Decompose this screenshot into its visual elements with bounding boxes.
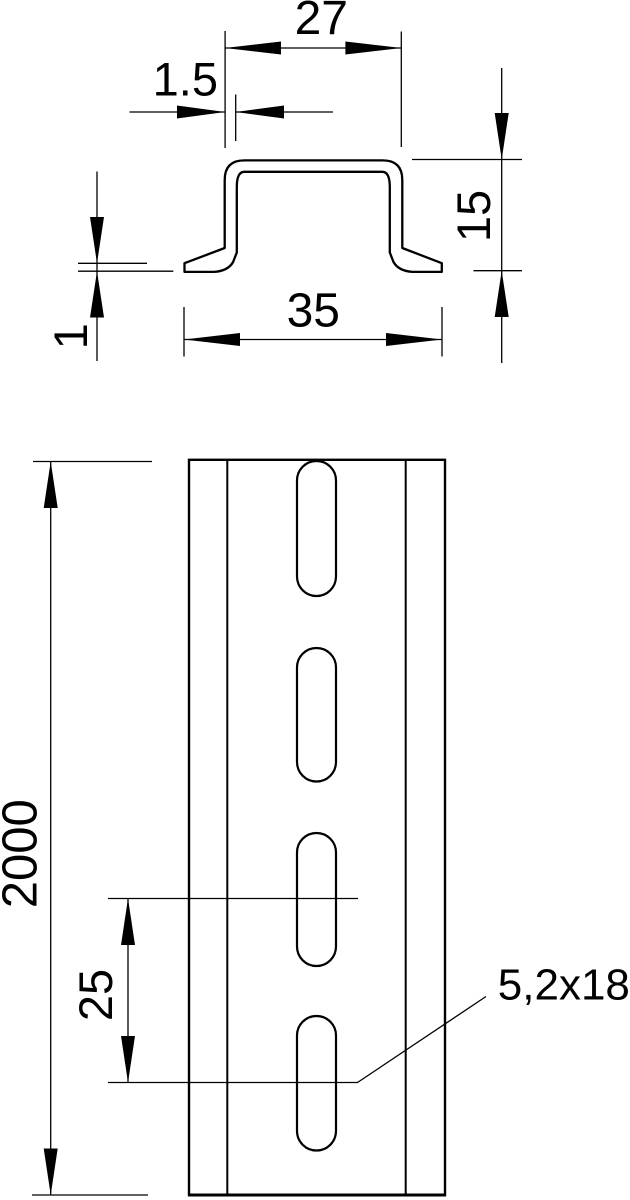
svg-text:5,2x18: 5,2x18 [498, 960, 630, 1009]
svg-text:35: 35 [287, 285, 340, 338]
svg-text:15: 15 [447, 190, 500, 242]
svg-text:2000: 2000 [0, 799, 48, 908]
svg-text:1.5: 1.5 [153, 53, 218, 106]
svg-text:1: 1 [44, 323, 97, 349]
svg-text:27: 27 [295, 0, 348, 45]
svg-text:25: 25 [69, 969, 122, 1021]
